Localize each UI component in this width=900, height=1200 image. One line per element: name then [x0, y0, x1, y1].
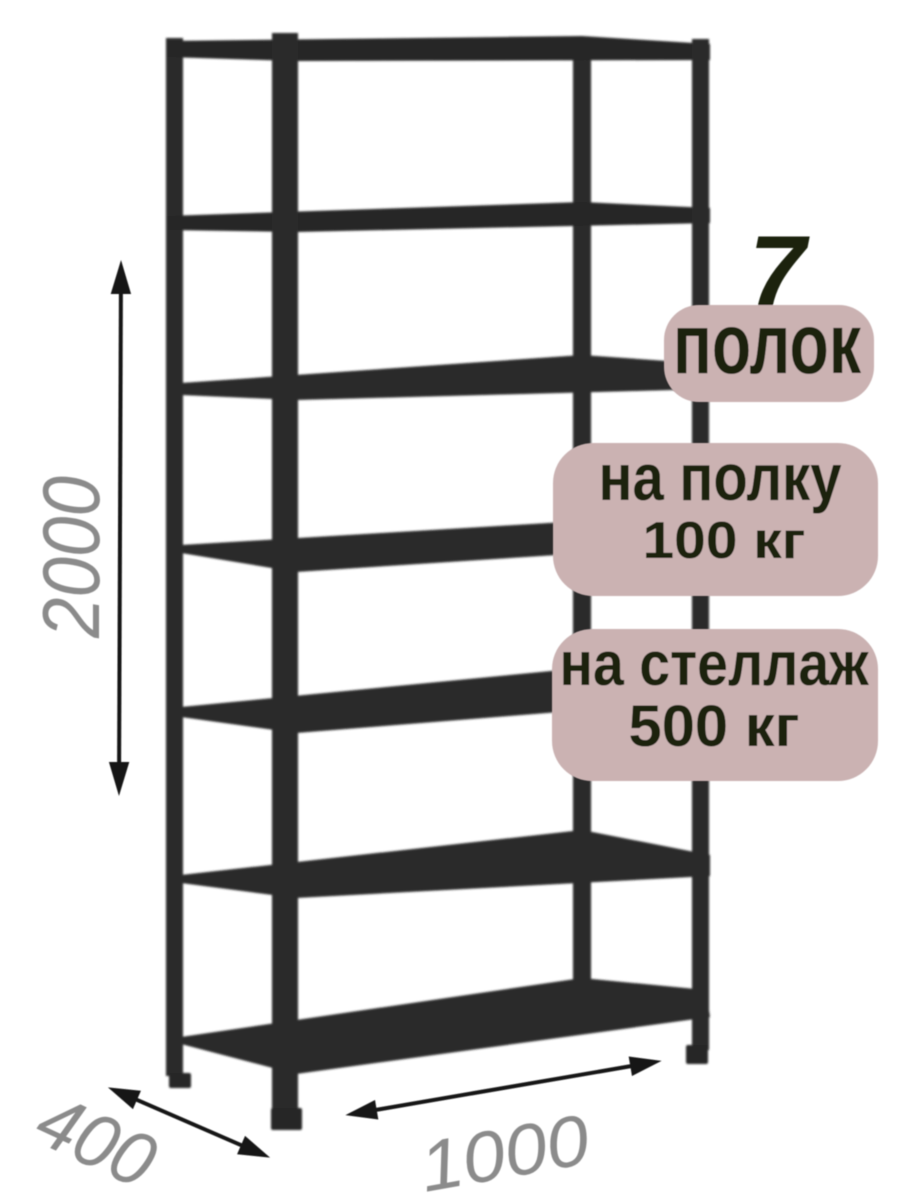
svg-text:на полку: на полку	[599, 440, 842, 514]
svg-text:полок: полок	[673, 297, 861, 392]
svg-text:на стеллаж: на стеллаж	[560, 630, 870, 699]
svg-text:100 кг: 100 кг	[643, 512, 806, 570]
svg-text:2000: 2000	[27, 476, 117, 639]
svg-text:500 кг: 500 кг	[629, 694, 800, 759]
